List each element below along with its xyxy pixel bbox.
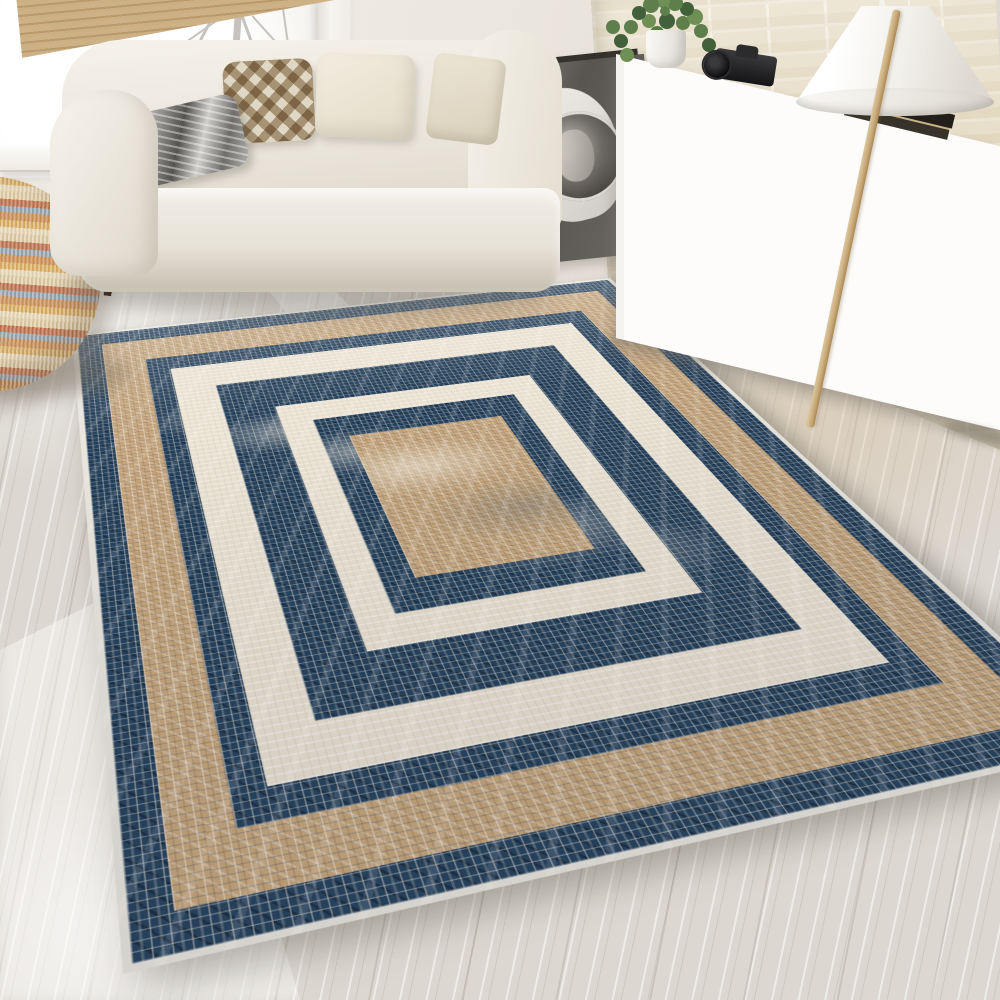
beige-pillow bbox=[425, 52, 507, 146]
living-room-scene bbox=[0, 0, 1000, 1000]
plant-pot bbox=[646, 30, 686, 68]
plant-leaves bbox=[660, 6, 670, 16]
cream-pillow bbox=[315, 52, 416, 139]
sofa-left-arm bbox=[50, 90, 158, 276]
lamp-shade-rim bbox=[796, 88, 994, 116]
